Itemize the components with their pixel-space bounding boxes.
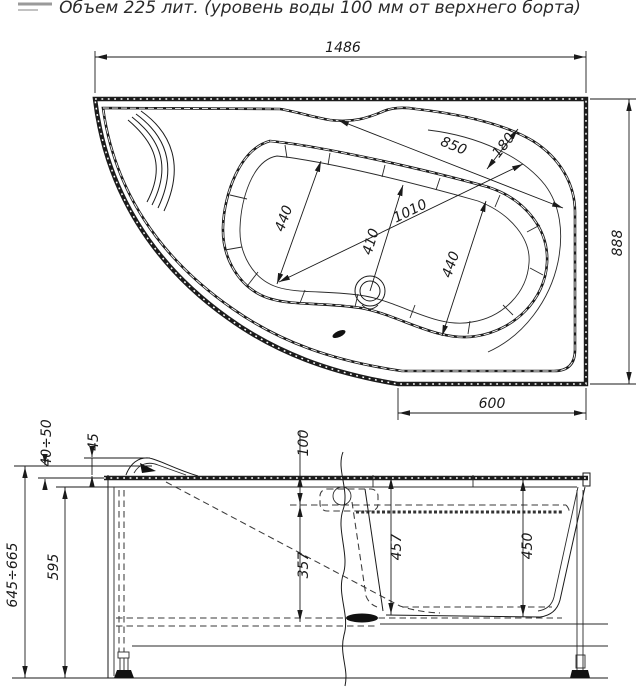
dim-depth-457: 457 (389, 477, 405, 615)
dim-rim-180: 180 (487, 129, 518, 169)
drain-side-view (346, 614, 378, 623)
svg-text:1486: 1486 (325, 40, 361, 56)
drawing-page: Объем 225 лит. (уровень воды 100 мм от в… (0, 0, 643, 690)
top-view: 1486 888 600 850 180 (95, 40, 636, 420)
right-wall (386, 487, 585, 617)
headrest-side-view (126, 458, 198, 476)
dim-depth-450: 450 (520, 479, 536, 617)
svg-text:595: 595 (46, 554, 62, 581)
dim-body-height: 595 (46, 487, 108, 678)
dim-water-level: 100 (296, 430, 312, 622)
svg-text:888: 888 (610, 230, 626, 257)
rim-ticks (225, 145, 543, 334)
svg-text:1010: 1010 (391, 196, 430, 226)
svg-text:40÷50: 40÷50 (39, 419, 55, 466)
dim-depth-357: 357 (296, 506, 312, 621)
svg-text:45: 45 (86, 433, 102, 451)
drain (355, 276, 385, 309)
svg-text:645÷665: 645÷665 (5, 542, 21, 607)
dim-lower-440: 440 (439, 201, 486, 336)
headrest-top-view (128, 111, 174, 211)
left-wall (108, 475, 124, 678)
left-foot (114, 652, 134, 678)
svg-text:850: 850 (438, 134, 469, 159)
svg-text:100: 100 (296, 430, 312, 457)
dim-top-height: 888 (590, 99, 636, 384)
cropped-corner-marks (18, 4, 52, 10)
svg-text:440: 440 (272, 203, 296, 234)
svg-text:450: 450 (520, 533, 536, 560)
svg-text:357: 357 (296, 552, 312, 579)
bowl-rim (223, 141, 547, 337)
svg-text:600: 600 (479, 396, 506, 412)
water-level (290, 505, 569, 514)
jet-nozzle (331, 328, 346, 339)
dim-total-height: 645÷665 (5, 466, 25, 678)
rim-band (104, 473, 590, 487)
dim-bottom-width: 600 (398, 388, 586, 420)
svg-text:410: 410 (360, 227, 383, 257)
dim-top-width: 1486 (95, 40, 586, 93)
overflow (320, 487, 378, 511)
dim-drain-410: 410 (360, 185, 403, 291)
svg-text:457: 457 (389, 534, 405, 561)
svg-text:440: 440 (439, 249, 463, 280)
side-view: 40÷50 45 645÷665 595 (5, 419, 608, 686)
bowl-bottom (240, 156, 529, 323)
right-leg (570, 490, 590, 678)
dim-long-axis: 1010 (279, 164, 523, 282)
bathtub-technical-drawing: Объем 225 лит. (уровень воды 100 мм от в… (0, 0, 643, 690)
drawing-title: Объем 225 лит. (уровень воды 100 мм от в… (59, 0, 581, 18)
dim-diagonal-850: 850 (338, 120, 563, 208)
